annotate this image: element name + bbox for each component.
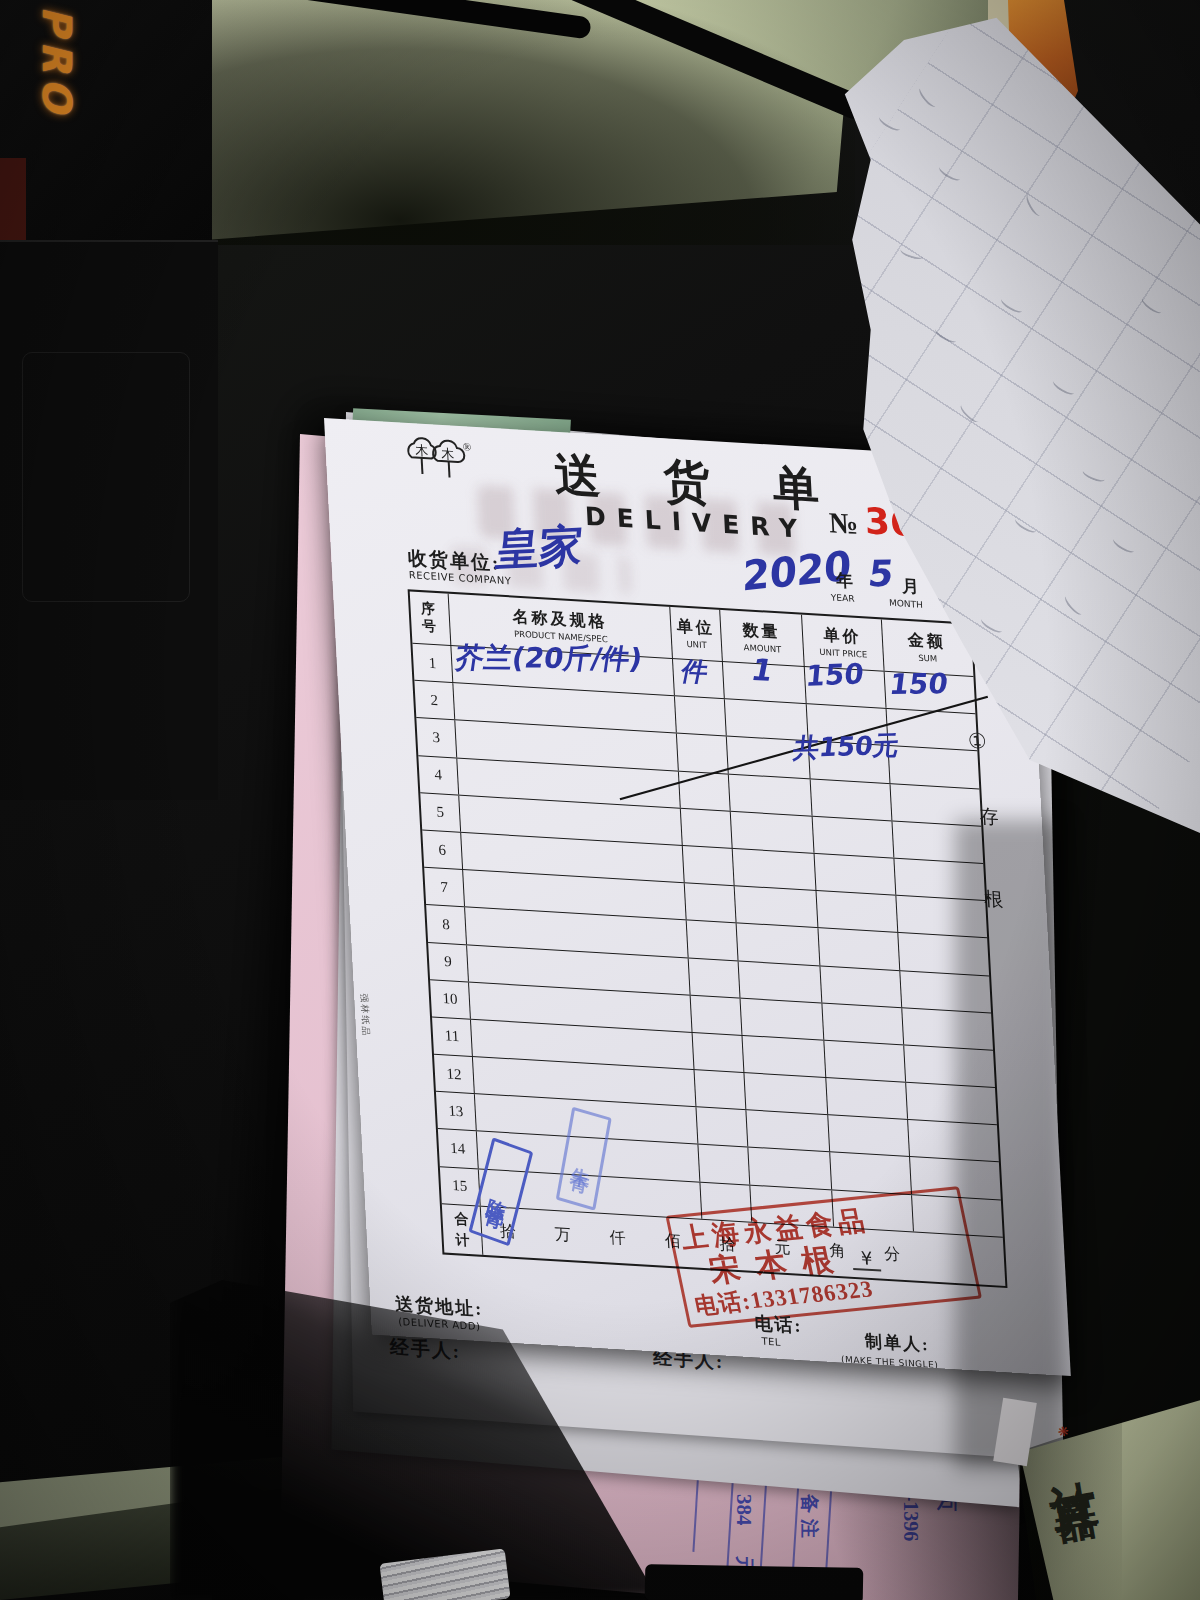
empty-cell (735, 886, 819, 927)
entry-name-handwritten: 芥兰(20斤/件) (452, 639, 642, 678)
row-number-cell: 11 (432, 1017, 473, 1056)
header-cn: 金额 (907, 631, 946, 652)
dark-object (212, 1580, 304, 1600)
row-number-cell: 1 (412, 644, 453, 683)
empty-cell (675, 696, 727, 735)
row-number-cell: 2 (414, 681, 455, 720)
tel-label-en: TEL (761, 1336, 781, 1348)
empty-cell (691, 995, 743, 1034)
empty-cell (887, 709, 977, 751)
empty-cell (731, 812, 815, 853)
empty-cell (811, 779, 893, 820)
row-number-cell: 10 (430, 980, 471, 1019)
amount-unit-char: 万 (554, 1224, 571, 1246)
empty-cell (889, 746, 979, 788)
header-cn: 序号 (410, 601, 450, 636)
entry-unit-handwritten: 件 (679, 653, 707, 690)
copy-number-circle: ① (967, 729, 987, 755)
entry-sum-handwritten: 150 (885, 667, 947, 701)
row-number: 12 (446, 1065, 462, 1083)
empty-cell (741, 998, 825, 1039)
photo-of-delivery-note: PRO 4 384 元 备注 05-28-1396 第1/1页 经手人: 经手人… (0, 0, 1200, 1600)
empty-cell (824, 1041, 906, 1082)
empty-cell (729, 774, 813, 815)
empty-cell (822, 1003, 904, 1044)
device-brand-label: PRO (34, 6, 80, 118)
row-number: 11 (444, 1028, 459, 1046)
row-number: 7 (440, 878, 448, 896)
receiver-handwritten: 皇家 (488, 517, 584, 580)
empty-cell (830, 1153, 912, 1194)
tel-label-cn: 电话: (754, 1311, 803, 1338)
empty-cell (689, 958, 741, 997)
empty-cell (817, 891, 899, 932)
row-number: 13 (448, 1102, 464, 1120)
empty-cell (746, 1111, 830, 1152)
row-number-cell: 3 (416, 718, 457, 757)
entry-price-handwritten: 150 (801, 657, 864, 693)
registered-mark: ® (462, 440, 471, 453)
empty-cell (737, 924, 821, 965)
empty-cell (818, 929, 900, 970)
empty-cell (698, 1145, 750, 1184)
logo-char: 木 (441, 446, 455, 462)
header-cn: 单位 (676, 618, 715, 639)
empty-cell (677, 734, 729, 773)
row-number: 15 (452, 1177, 468, 1195)
empty-cell (687, 921, 739, 960)
printer-brand-mark: 强林纸品 (357, 993, 372, 1038)
amount-unit-char: 仟 (609, 1228, 626, 1250)
empty-cell (681, 809, 733, 848)
row-number-cell: 14 (438, 1129, 479, 1168)
maker-label-cn: 制单人: (864, 1330, 930, 1357)
empty-cell (696, 1108, 748, 1147)
date-month-cn: 月 (901, 575, 919, 599)
row-number: 1 (428, 654, 436, 672)
empty-cell (733, 849, 817, 890)
empty-cell (679, 771, 731, 810)
empty-cell (683, 846, 735, 885)
row-number: 8 (442, 916, 450, 934)
desk-shadow (205, 0, 855, 245)
row-number-cell: 15 (440, 1167, 481, 1206)
empty-cell (826, 1078, 908, 1119)
date-year-cn: 年 (835, 569, 853, 593)
row-number: 10 (442, 990, 458, 1008)
row-number: 5 (436, 804, 444, 822)
brand-tree-logo: 木 木 ® (402, 435, 479, 492)
shadow-overlay (955, 820, 1065, 1470)
row-number: 14 (450, 1140, 466, 1158)
empty-cell (742, 1036, 826, 1077)
header-en: UNIT (686, 639, 707, 650)
header-cell-0: 序号 (410, 591, 452, 645)
row-number-cell: 6 (422, 830, 463, 869)
row-number-cell: 13 (436, 1092, 477, 1131)
dark-object (645, 1564, 864, 1600)
total-note-handwritten: 共150元 (789, 728, 899, 766)
row-number: 3 (432, 729, 440, 747)
black-device (0, 0, 212, 240)
row-number-cell: 12 (434, 1055, 475, 1094)
empty-cell (695, 1070, 747, 1109)
panel-outline (22, 352, 190, 602)
date-month-en: MONTH (889, 598, 923, 610)
entry-amount-handwritten: 1 (748, 652, 771, 688)
empty-cell (744, 1073, 828, 1114)
row-number: 9 (444, 953, 452, 971)
date-month-handwritten: 5 (863, 553, 893, 595)
number-prefix: № (828, 506, 859, 541)
empty-cell (739, 961, 823, 1002)
row-number-cell: 9 (428, 943, 469, 982)
empty-cell (815, 854, 897, 895)
row-number-cell: 8 (426, 905, 467, 944)
empty-cell (748, 1148, 832, 1189)
row-number-cell: 4 (418, 756, 459, 795)
header-cn: 数量 (742, 621, 781, 642)
row-number-cell: 5 (420, 793, 461, 832)
empty-cell (693, 1033, 745, 1072)
row-number-cell: 7 (424, 868, 465, 907)
empty-cell (813, 816, 895, 857)
row-number: 6 (438, 841, 446, 859)
logo-char: 木 (415, 442, 429, 458)
row-number: 2 (430, 692, 438, 710)
empty-cell (685, 883, 737, 922)
red-object-edge (0, 158, 26, 242)
header-cn: 单价 (823, 626, 862, 647)
date-year-en: YEAR (831, 592, 855, 603)
header-en: SUM (918, 652, 937, 663)
empty-cell (820, 966, 902, 1007)
row-number: 4 (434, 766, 442, 784)
empty-cell (828, 1115, 910, 1156)
